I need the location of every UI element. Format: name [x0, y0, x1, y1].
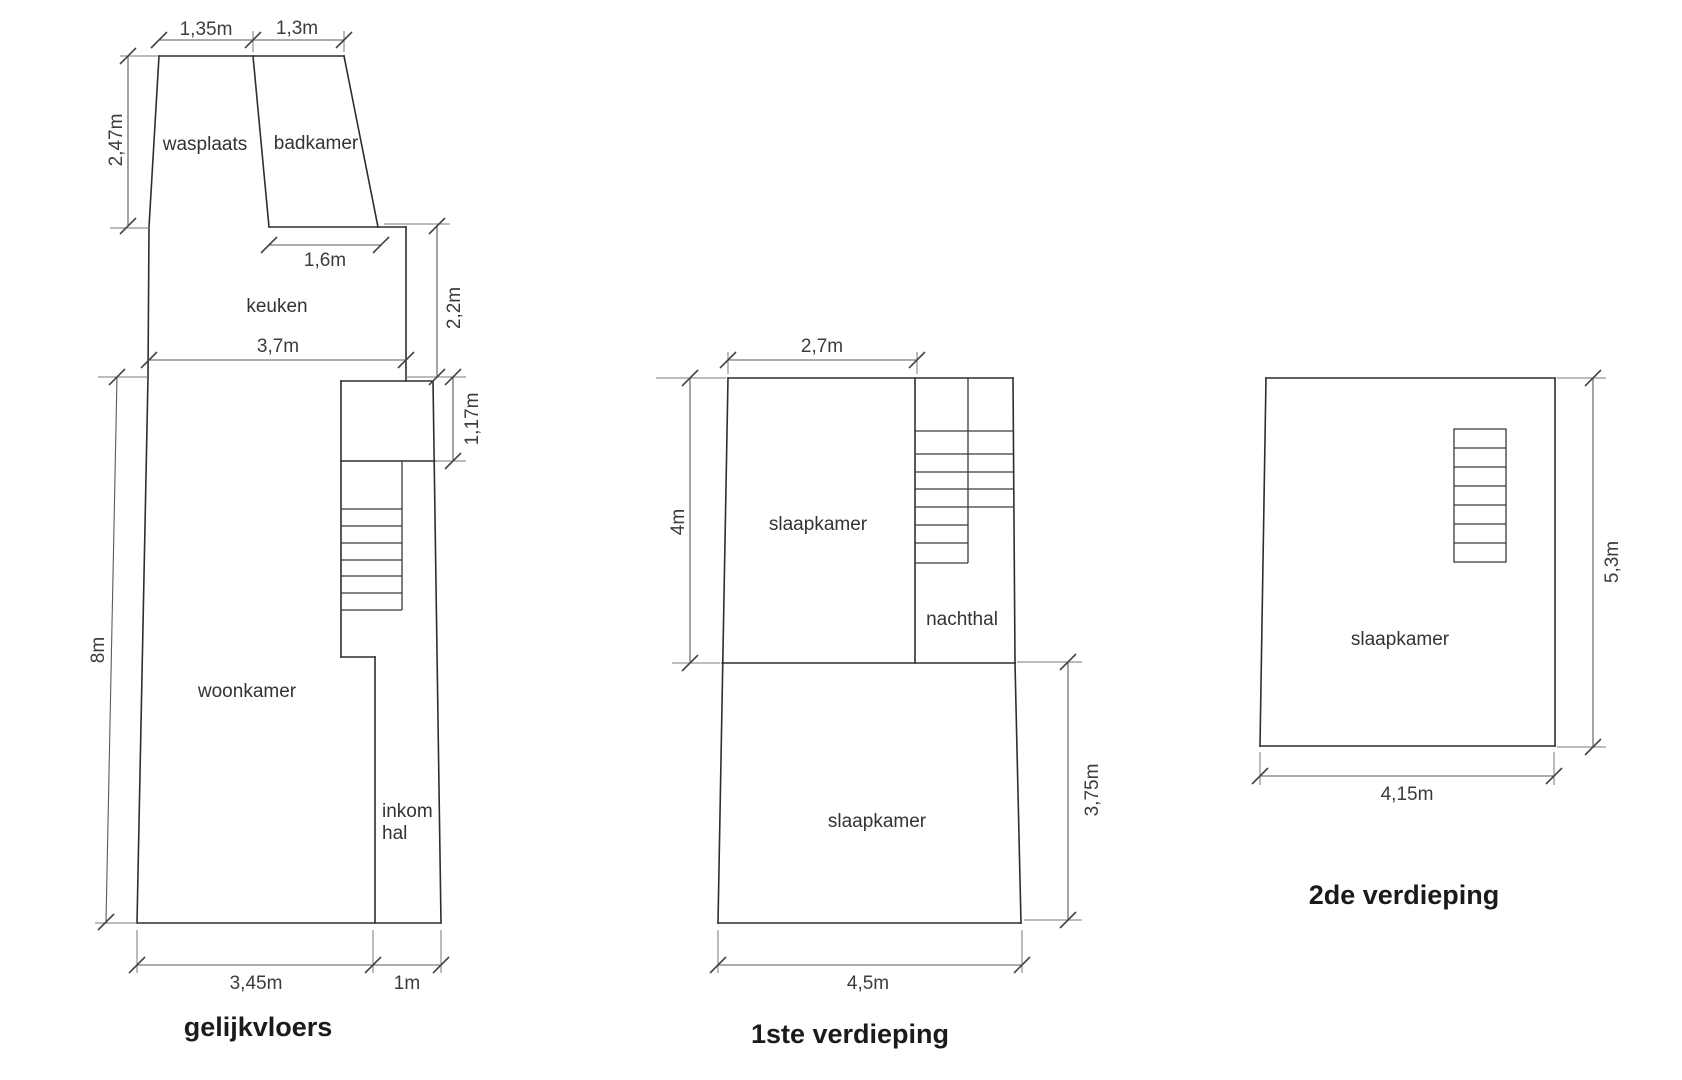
room-label-slaapkamer-second: slaapkamer — [1351, 629, 1450, 650]
floor-title-2de-verdieping: 2de verdieping — [1309, 880, 1500, 910]
room-label-inkom-hal-line1: inkom — [382, 801, 433, 822]
room-label-badkamer: badkamer — [274, 133, 359, 154]
dim-label-slaapkamer-bottom-width: 4,5m — [847, 973, 889, 994]
ground-floor-walls — [137, 56, 441, 923]
dim-label-badkamer-width: 1,3m — [276, 18, 318, 39]
dim-label-slaapkamer-bottom-height: 3,75m — [1082, 764, 1103, 817]
dim-label-second-floor-width: 4,15m — [1381, 784, 1434, 805]
first-floor-labels: 2,7m 4m slaapkamer nachthal slaapkamer 3… — [668, 336, 1103, 1049]
room-label-inkom-hal-line2: hal — [382, 823, 407, 844]
dim-label-woonkamer-width: 3,45m — [230, 973, 283, 994]
second-floor-plan: 5,3m slaapkamer 4,15m 2de verdieping — [1252, 370, 1623, 910]
room-label-wasplaats: wasplaats — [162, 134, 248, 155]
second-floor-walls — [1260, 378, 1555, 746]
first-floor-plan: 2,7m 4m slaapkamer nachthal slaapkamer 3… — [656, 336, 1103, 1049]
second-floor-stairs — [1454, 429, 1506, 562]
dim-label-woonkamer-height: 8m — [88, 637, 109, 663]
room-label-slaapkamer-bottom: slaapkamer — [828, 811, 927, 832]
dim-label-slaapkamer-top-width: 2,7m — [801, 336, 843, 357]
dim-label-slaapkamer-top-height: 4m — [668, 509, 689, 535]
first-floor-stairs — [915, 378, 1013, 563]
dim-label-landing-height: 1,17m — [462, 393, 483, 446]
second-floor-dimension-ticks — [1252, 370, 1601, 784]
room-label-nachthal: nachthal — [926, 609, 998, 630]
dim-label-badkamer-bottom-width: 1,6m — [304, 250, 346, 271]
dim-label-inkom-hal-width: 1m — [394, 973, 420, 994]
floor-title-gelijkvloers: gelijkvloers — [184, 1012, 333, 1042]
floor-plan-page: wasplaats badkamer keuken woonkamer inko… — [0, 0, 1682, 1080]
ground-floor-labels: wasplaats badkamer keuken woonkamer inko… — [88, 18, 483, 1042]
second-floor-dimension-lines — [1260, 378, 1606, 785]
dim-label-wasplaats-height: 2,47m — [106, 114, 127, 167]
ground-floor-stairs — [341, 461, 402, 610]
floor-title-1ste-verdieping: 1ste verdieping — [751, 1019, 949, 1049]
second-floor-labels: 5,3m slaapkamer 4,15m 2de verdieping — [1309, 541, 1623, 910]
room-label-woonkamer: woonkamer — [197, 681, 297, 702]
dim-label-wasplaats-width: 1,35m — [180, 19, 233, 40]
ground-floor-plan: wasplaats badkamer keuken woonkamer inko… — [88, 18, 483, 1042]
floor-plan-diagram: wasplaats badkamer keuken woonkamer inko… — [0, 0, 1682, 1080]
dim-label-keuken-width: 3,7m — [257, 336, 299, 357]
first-floor-walls — [718, 378, 1021, 923]
room-label-slaapkamer-top: slaapkamer — [769, 514, 868, 535]
dim-label-keuken-right-height: 2,2m — [444, 287, 465, 329]
room-label-keuken: keuken — [246, 296, 307, 317]
dim-label-second-floor-height: 5,3m — [1602, 541, 1623, 583]
ground-floor-dimension-lines — [95, 31, 466, 973]
